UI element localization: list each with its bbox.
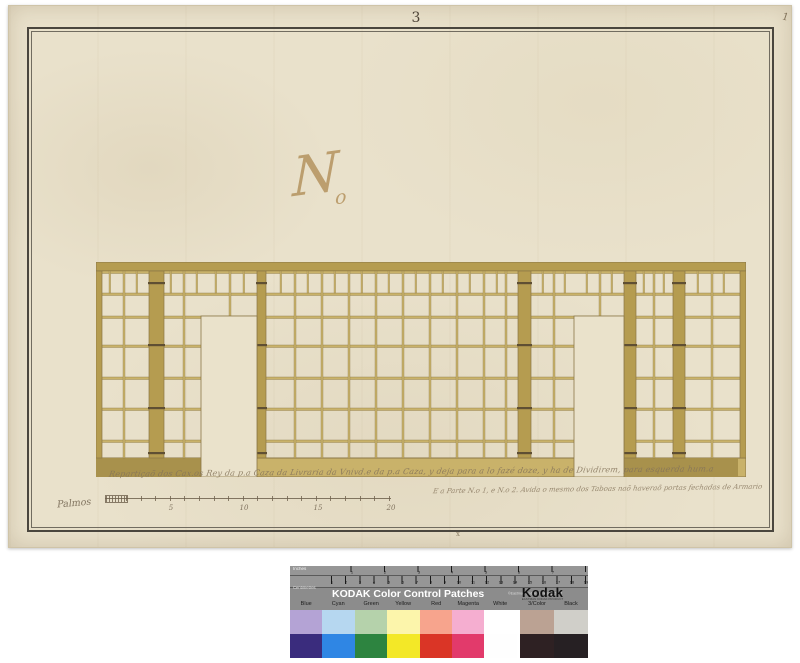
- patch-dark: [520, 634, 554, 658]
- upper-mullion: [229, 271, 231, 316]
- frieze-divider: [361, 271, 363, 293]
- hinge-fitting: [672, 407, 686, 409]
- hinge-fitting: [672, 282, 686, 284]
- upper-mullion: [599, 271, 601, 316]
- frieze-divider: [415, 271, 417, 293]
- patch-light: [520, 610, 554, 634]
- frieze-divider: [442, 271, 444, 293]
- ruler-number: 3: [359, 581, 361, 585]
- kodak-title-row: Centimetres KODAK Color Control Patches …: [290, 588, 588, 601]
- ruler-number: 5: [387, 581, 389, 585]
- post: [149, 271, 164, 458]
- hinge-fitting: [256, 407, 267, 409]
- monogram: No: [292, 138, 350, 210]
- shelf-rail: [96, 293, 746, 296]
- frieze-divider: [723, 271, 725, 293]
- frieze-divider: [280, 271, 282, 293]
- frieze-divider: [388, 271, 390, 293]
- post: [673, 271, 685, 458]
- frieze-divider: [307, 271, 309, 293]
- hinge-fitting: [623, 452, 637, 454]
- mullion: [429, 271, 431, 458]
- frieze-divider: [243, 271, 245, 293]
- frieze-divider: [170, 271, 172, 293]
- hinge-fitting: [148, 344, 165, 346]
- scale-tick: [126, 496, 127, 501]
- patch-light: [290, 610, 322, 634]
- ruler-number: 12: [485, 581, 489, 585]
- ruler-number: 2: [345, 581, 347, 585]
- mullion: [294, 271, 296, 458]
- ruler-number: 6: [518, 571, 520, 575]
- frieze-divider: [109, 271, 111, 293]
- mullion: [653, 271, 655, 458]
- patch-dark: [420, 634, 452, 658]
- scale-tick: [257, 496, 258, 501]
- ruler-number: 3: [417, 571, 419, 575]
- ruler-number: 11: [471, 581, 475, 585]
- patch-light: [484, 610, 516, 634]
- scale-tick: [228, 496, 229, 501]
- patch-column-black: [554, 610, 588, 658]
- patch-light: [387, 610, 419, 634]
- patch-label-blue: Blue: [291, 601, 321, 609]
- cornice: [96, 262, 746, 271]
- scale-tick: [389, 496, 390, 501]
- mullion: [505, 271, 507, 458]
- inch-ruler: Inches 1234567: [290, 566, 588, 576]
- ruler-number: 1: [350, 571, 352, 575]
- post: [740, 271, 746, 458]
- scale-hatch: [105, 495, 128, 503]
- shelf-rail: [96, 345, 746, 348]
- scale-tick: [155, 496, 156, 501]
- patch-light: [322, 610, 354, 634]
- patch-column-green: [355, 610, 387, 658]
- ruler-number: 19: [584, 581, 588, 585]
- hinge-fitting: [148, 407, 165, 409]
- frieze-divider: [215, 271, 217, 293]
- patch-light: [452, 610, 484, 634]
- hinge-fitting: [148, 282, 165, 284]
- patch-dark: [387, 634, 419, 658]
- page-number: 3: [401, 10, 431, 26]
- mullion: [553, 271, 555, 458]
- scale-number: 5: [169, 504, 173, 512]
- scale-tick: [287, 496, 288, 501]
- patch-label-green: Green: [356, 601, 386, 609]
- hinge-fitting: [517, 452, 532, 454]
- frieze-divider: [496, 271, 498, 293]
- bottom-ink-mark: x: [456, 530, 460, 538]
- scale-number: 20: [387, 504, 396, 512]
- scale-tick: [243, 496, 244, 501]
- hinge-fitting: [517, 407, 532, 409]
- scale-tick: [330, 496, 331, 501]
- scale-tick: [214, 496, 215, 501]
- patch-column-yellow: [387, 610, 419, 658]
- mullion: [483, 271, 485, 458]
- ruler-number: 8: [430, 581, 432, 585]
- patch-label-yellow: Yellow: [388, 601, 418, 609]
- frieze-divider: [542, 271, 544, 293]
- monogram-letter: N: [292, 139, 339, 209]
- mullion: [348, 271, 350, 458]
- patch-column-cyan: [322, 610, 354, 658]
- ruler-number: 7: [551, 571, 553, 575]
- hinge-fitting: [517, 344, 532, 346]
- shelf-rail: [96, 271, 746, 274]
- ruler-number: 2: [384, 571, 386, 575]
- kodak-color-bar: Inches 1234567 1234567891011121314151617…: [290, 566, 588, 658]
- ruler-number: 7: [416, 581, 418, 585]
- patch-dark: [554, 634, 588, 658]
- ruler-number: 6: [401, 581, 403, 585]
- mullion: [375, 271, 377, 458]
- patch-column-magenta: [452, 610, 484, 658]
- patch-light: [554, 610, 588, 634]
- ruler-number: 1: [331, 581, 333, 585]
- hinge-fitting: [623, 407, 637, 409]
- bookcase-elevation-drawing: [96, 262, 746, 477]
- patch-label-magenta: Magenta: [453, 601, 483, 609]
- hinge-fitting: [256, 282, 267, 284]
- scale-tick: [345, 496, 346, 501]
- kodak-patch-grid: [290, 610, 588, 658]
- scale-tick: [199, 496, 200, 501]
- ruler-number: 5: [484, 571, 486, 575]
- scale-tick: [141, 496, 142, 501]
- patch-column-red: [420, 610, 452, 658]
- mullion: [402, 271, 404, 458]
- mullion: [183, 271, 185, 458]
- scale-number: 10: [240, 504, 249, 512]
- hinge-fitting: [517, 282, 532, 284]
- patch-light: [355, 610, 387, 634]
- frieze-divider: [196, 271, 198, 293]
- mullion: [456, 271, 458, 458]
- cm-ruler-label: Centimetres: [293, 586, 316, 590]
- scanned-archive-image: 3 1 No Repartiçaõ dos Cax.os Rey da p.a …: [0, 0, 800, 663]
- ruler-number: 9: [444, 581, 446, 585]
- post: [257, 271, 266, 458]
- post: [624, 271, 636, 458]
- hinge-fitting: [672, 344, 686, 346]
- hinge-fitting: [623, 344, 637, 346]
- ruler-number: 4: [451, 571, 453, 575]
- patch-label-white: White: [486, 601, 516, 609]
- frieze-divider: [643, 271, 645, 293]
- inch-ruler-label: Inches: [293, 567, 306, 572]
- patch-label-red: Red: [421, 601, 451, 609]
- frieze-divider: [697, 271, 699, 293]
- label-gap: [517, 601, 520, 610]
- scale-tick: [272, 496, 273, 501]
- mullion: [123, 271, 125, 458]
- door-opening: [574, 316, 624, 477]
- patch-column-3-color: [520, 610, 554, 658]
- scale-tick: [360, 496, 361, 501]
- frieze-divider: [663, 271, 665, 293]
- frieze-divider: [586, 271, 588, 293]
- patch-label-black: Black: [555, 601, 586, 609]
- patch-dark: [355, 634, 387, 658]
- shelf-rail: [96, 408, 746, 411]
- patch-dark: [290, 634, 322, 658]
- scale-number: 15: [314, 504, 323, 512]
- hinge-fitting: [256, 344, 267, 346]
- hinge-fitting: [623, 282, 637, 284]
- shelf-rail: [96, 440, 746, 443]
- patch-label-cyan: Cyan: [324, 601, 354, 609]
- frieze-divider: [469, 271, 471, 293]
- kodak-column-labels: BlueCyanGreenYellowRedMagentaWhite3/Colo…: [290, 601, 588, 610]
- hinge-fitting: [256, 452, 267, 454]
- patch-dark: [452, 634, 484, 658]
- patch-dark: [484, 634, 516, 658]
- scale-tick: [170, 496, 171, 501]
- door-opening: [201, 316, 257, 477]
- scale-tick: [374, 496, 375, 501]
- patch-dark: [322, 634, 354, 658]
- mullion: [321, 271, 323, 458]
- patch-column-blue: [290, 610, 322, 658]
- frieze-divider: [564, 271, 566, 293]
- post: [96, 271, 102, 458]
- frieze-divider: [611, 271, 613, 293]
- mullion: [711, 271, 713, 458]
- scale-tick: [301, 496, 302, 501]
- patch-light: [420, 610, 452, 634]
- scale-tick: [316, 496, 317, 501]
- ruler-number: 10: [457, 581, 461, 585]
- post: [518, 271, 531, 458]
- patch-label-3-color: 3/Color: [521, 601, 552, 609]
- kodak-title: KODAK Color Control Patches: [332, 588, 484, 600]
- corner-ink-mark: 1: [780, 11, 789, 23]
- patch-column-white: [484, 610, 516, 658]
- monogram-flourish: o: [335, 186, 346, 210]
- scale-tick: [184, 496, 185, 501]
- shelf-rail: [96, 316, 746, 319]
- hinge-fitting: [672, 452, 686, 454]
- hinge-fitting: [148, 452, 165, 454]
- scale-line: [105, 498, 391, 499]
- frieze-divider: [136, 271, 138, 293]
- shelf-rail: [96, 377, 746, 380]
- frieze-divider: [334, 271, 336, 293]
- manuscript-sheet: 3 1 No Repartiçaõ dos Cax.os Rey da p.a …: [8, 5, 792, 548]
